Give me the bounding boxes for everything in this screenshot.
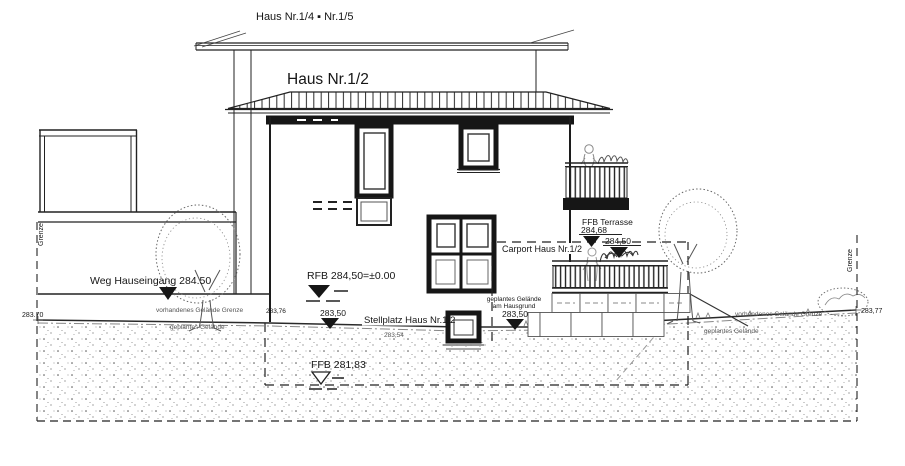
balcony-slab (563, 198, 629, 210)
rfb-label: RFB 284,50=±0.00 (307, 270, 396, 282)
carport-label: Carport Haus Nr.1/2 (502, 244, 582, 254)
embankment-line (690, 294, 748, 326)
main-house-title: Haus Nr.1/2 (287, 71, 369, 88)
gepl-right: geplantes Gelände (704, 328, 759, 335)
window-upper-right (457, 127, 500, 173)
hausgrund-l1: geplantes Gelände (487, 296, 542, 303)
level-right: 283,77 (861, 308, 883, 315)
ffb-keller-label: FFB 281,83 (311, 359, 366, 371)
terrasse-level2: 284,50 (605, 236, 631, 246)
retaining-blocks-row2 (528, 313, 664, 337)
stellplatz-level: 283,50 (320, 308, 346, 318)
balcony-railing (566, 167, 627, 198)
window-upper-left (357, 126, 391, 225)
hausgrund-level: 283,50 (502, 309, 528, 319)
site-elevation-svg: Weg Hauseingang 284.50 RFB 284,50=±0.00 … (0, 0, 905, 466)
eave-fascia (266, 116, 574, 125)
vorh-left: vorhandenes Gelände Grenze (156, 307, 243, 314)
marker-carport: Carport Haus Nr.1/2 (499, 243, 582, 254)
marker-rfb: RFB 284,50=±0.00 (306, 270, 396, 301)
ffb-terrasse-level: 284,68 (581, 225, 607, 235)
level-mid: 283,76 (266, 308, 286, 315)
grenze-right-label: Grenze (847, 249, 854, 272)
left-building (38, 130, 270, 294)
rear-house-title: Haus Nr.1/4 ▪ Nr.1/5 (256, 11, 353, 23)
grenze-left-label: Grenze (38, 223, 45, 246)
terrace-railing (553, 266, 667, 288)
window-ground-floor (429, 217, 494, 291)
level-dashes-upper (313, 202, 352, 209)
main-house-roof (225, 92, 613, 125)
upper-balcony (563, 145, 629, 210)
vorh-right: vorhandenes Gelände Grenze (735, 311, 822, 318)
elevation-drawing: Weg Hauseingang 284.50 RFB 284,50=±0.00 … (0, 0, 905, 466)
weg-label: Weg Hauseingang 284.50 (90, 275, 211, 287)
gepl-left: geplantes Gelände (170, 324, 225, 331)
stellplatz-label: Stellplatz Haus Nr.1/2 (364, 315, 455, 326)
level-left: 283.70 (22, 312, 44, 319)
stellplatz-sub: 283,54 (384, 332, 404, 339)
marker-weg: Weg Hauseingang 284.50 (90, 275, 211, 300)
